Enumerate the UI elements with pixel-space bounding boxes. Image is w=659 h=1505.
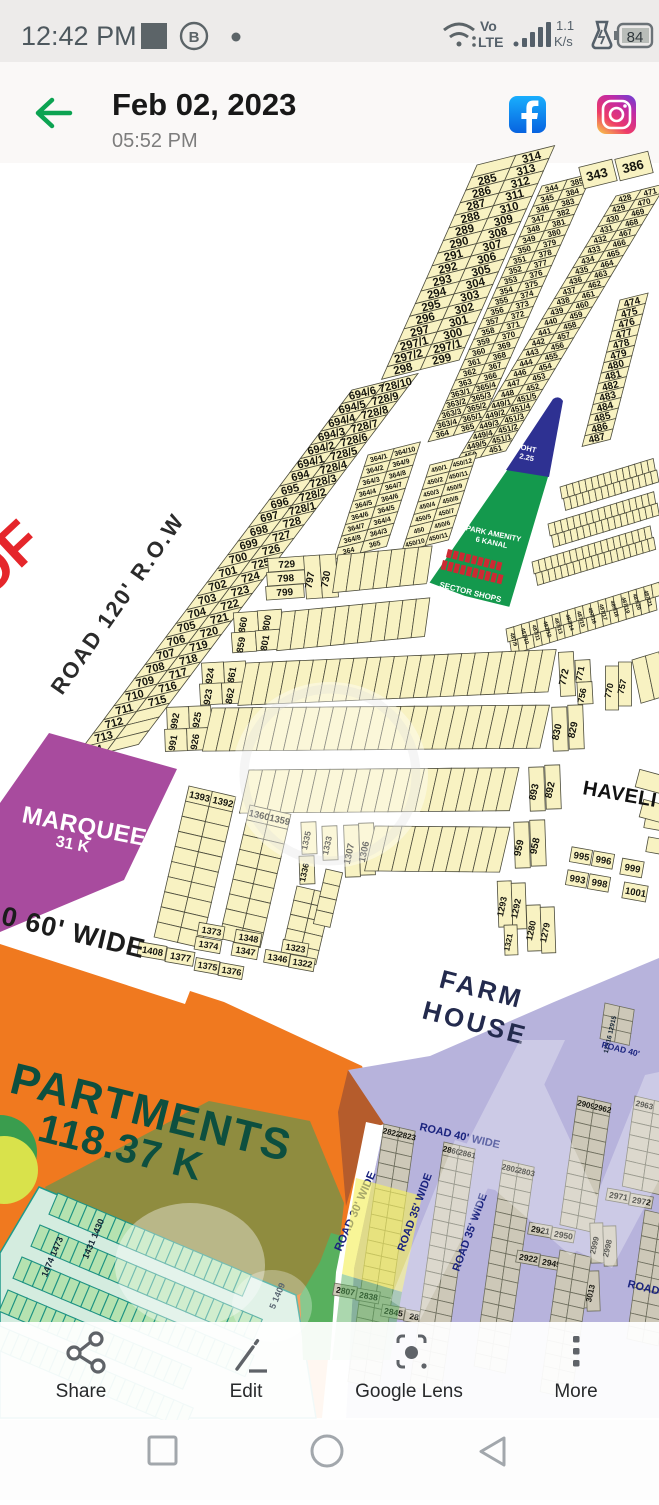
svg-text:799: 799 [276,587,294,599]
svg-text:Feb 02, 2023: Feb 02, 2023 [112,87,296,122]
svg-text:05:52 PM: 05:52 PM [112,130,198,152]
svg-text:More: More [554,1381,597,1402]
svg-text:Share: Share [56,1381,107,1402]
svg-text:B: B [189,29,200,46]
svg-text:K/s: K/s [554,34,573,49]
svg-text:1.1: 1.1 [556,18,574,33]
svg-text:Google Lens: Google Lens [355,1381,463,1402]
svg-text:729: 729 [278,559,296,571]
svg-text:LTE: LTE [478,34,503,50]
svg-text:Edit: Edit [230,1381,263,1402]
svg-text:84: 84 [627,29,644,46]
svg-text:12:42 PM: 12:42 PM [21,21,137,51]
svg-text:Vo: Vo [480,18,497,34]
svg-text:798: 798 [277,573,295,585]
